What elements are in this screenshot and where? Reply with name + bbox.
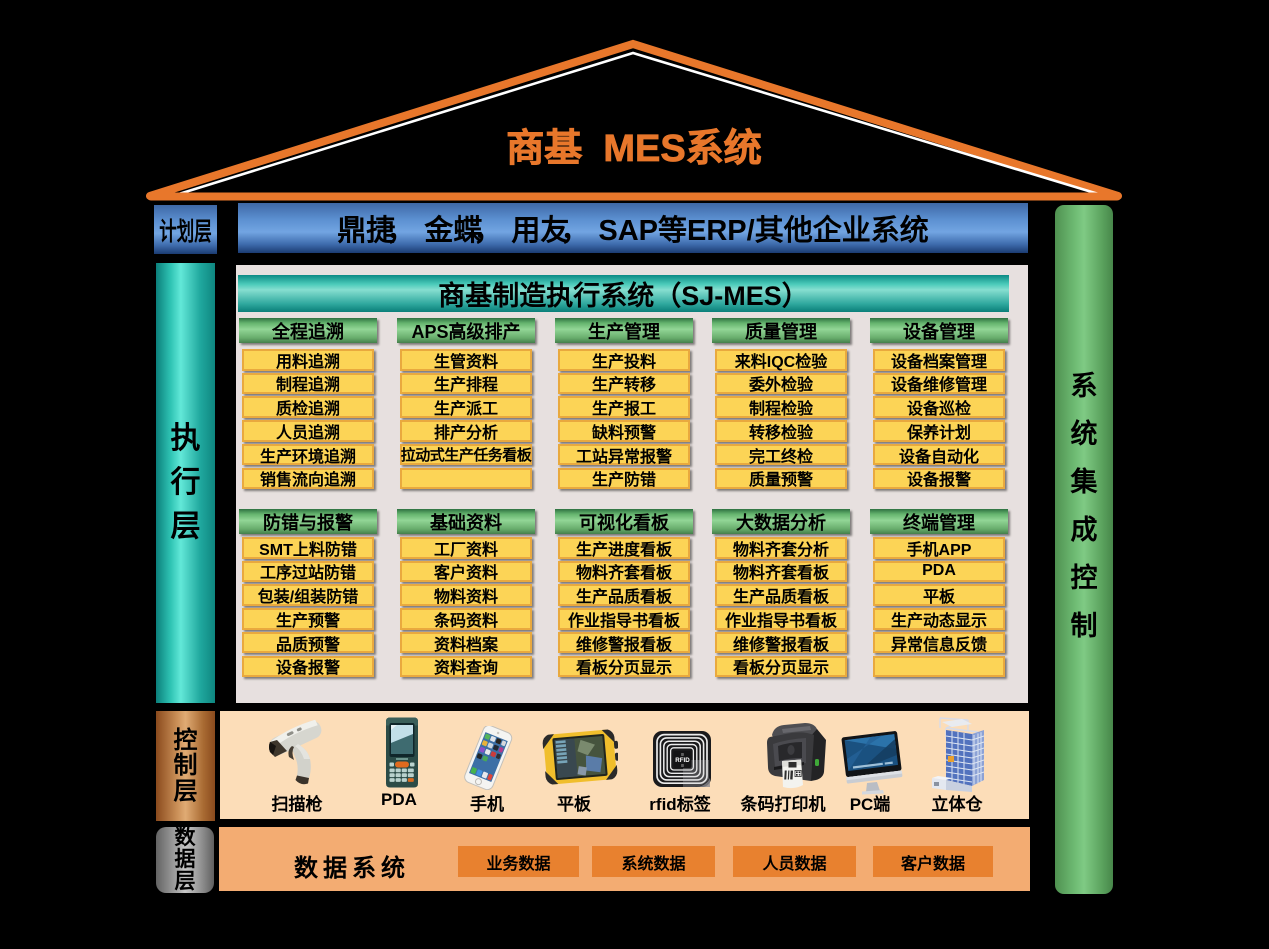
svg-text:≋: ≋: [681, 763, 685, 768]
svg-text:≋: ≋: [681, 752, 685, 757]
